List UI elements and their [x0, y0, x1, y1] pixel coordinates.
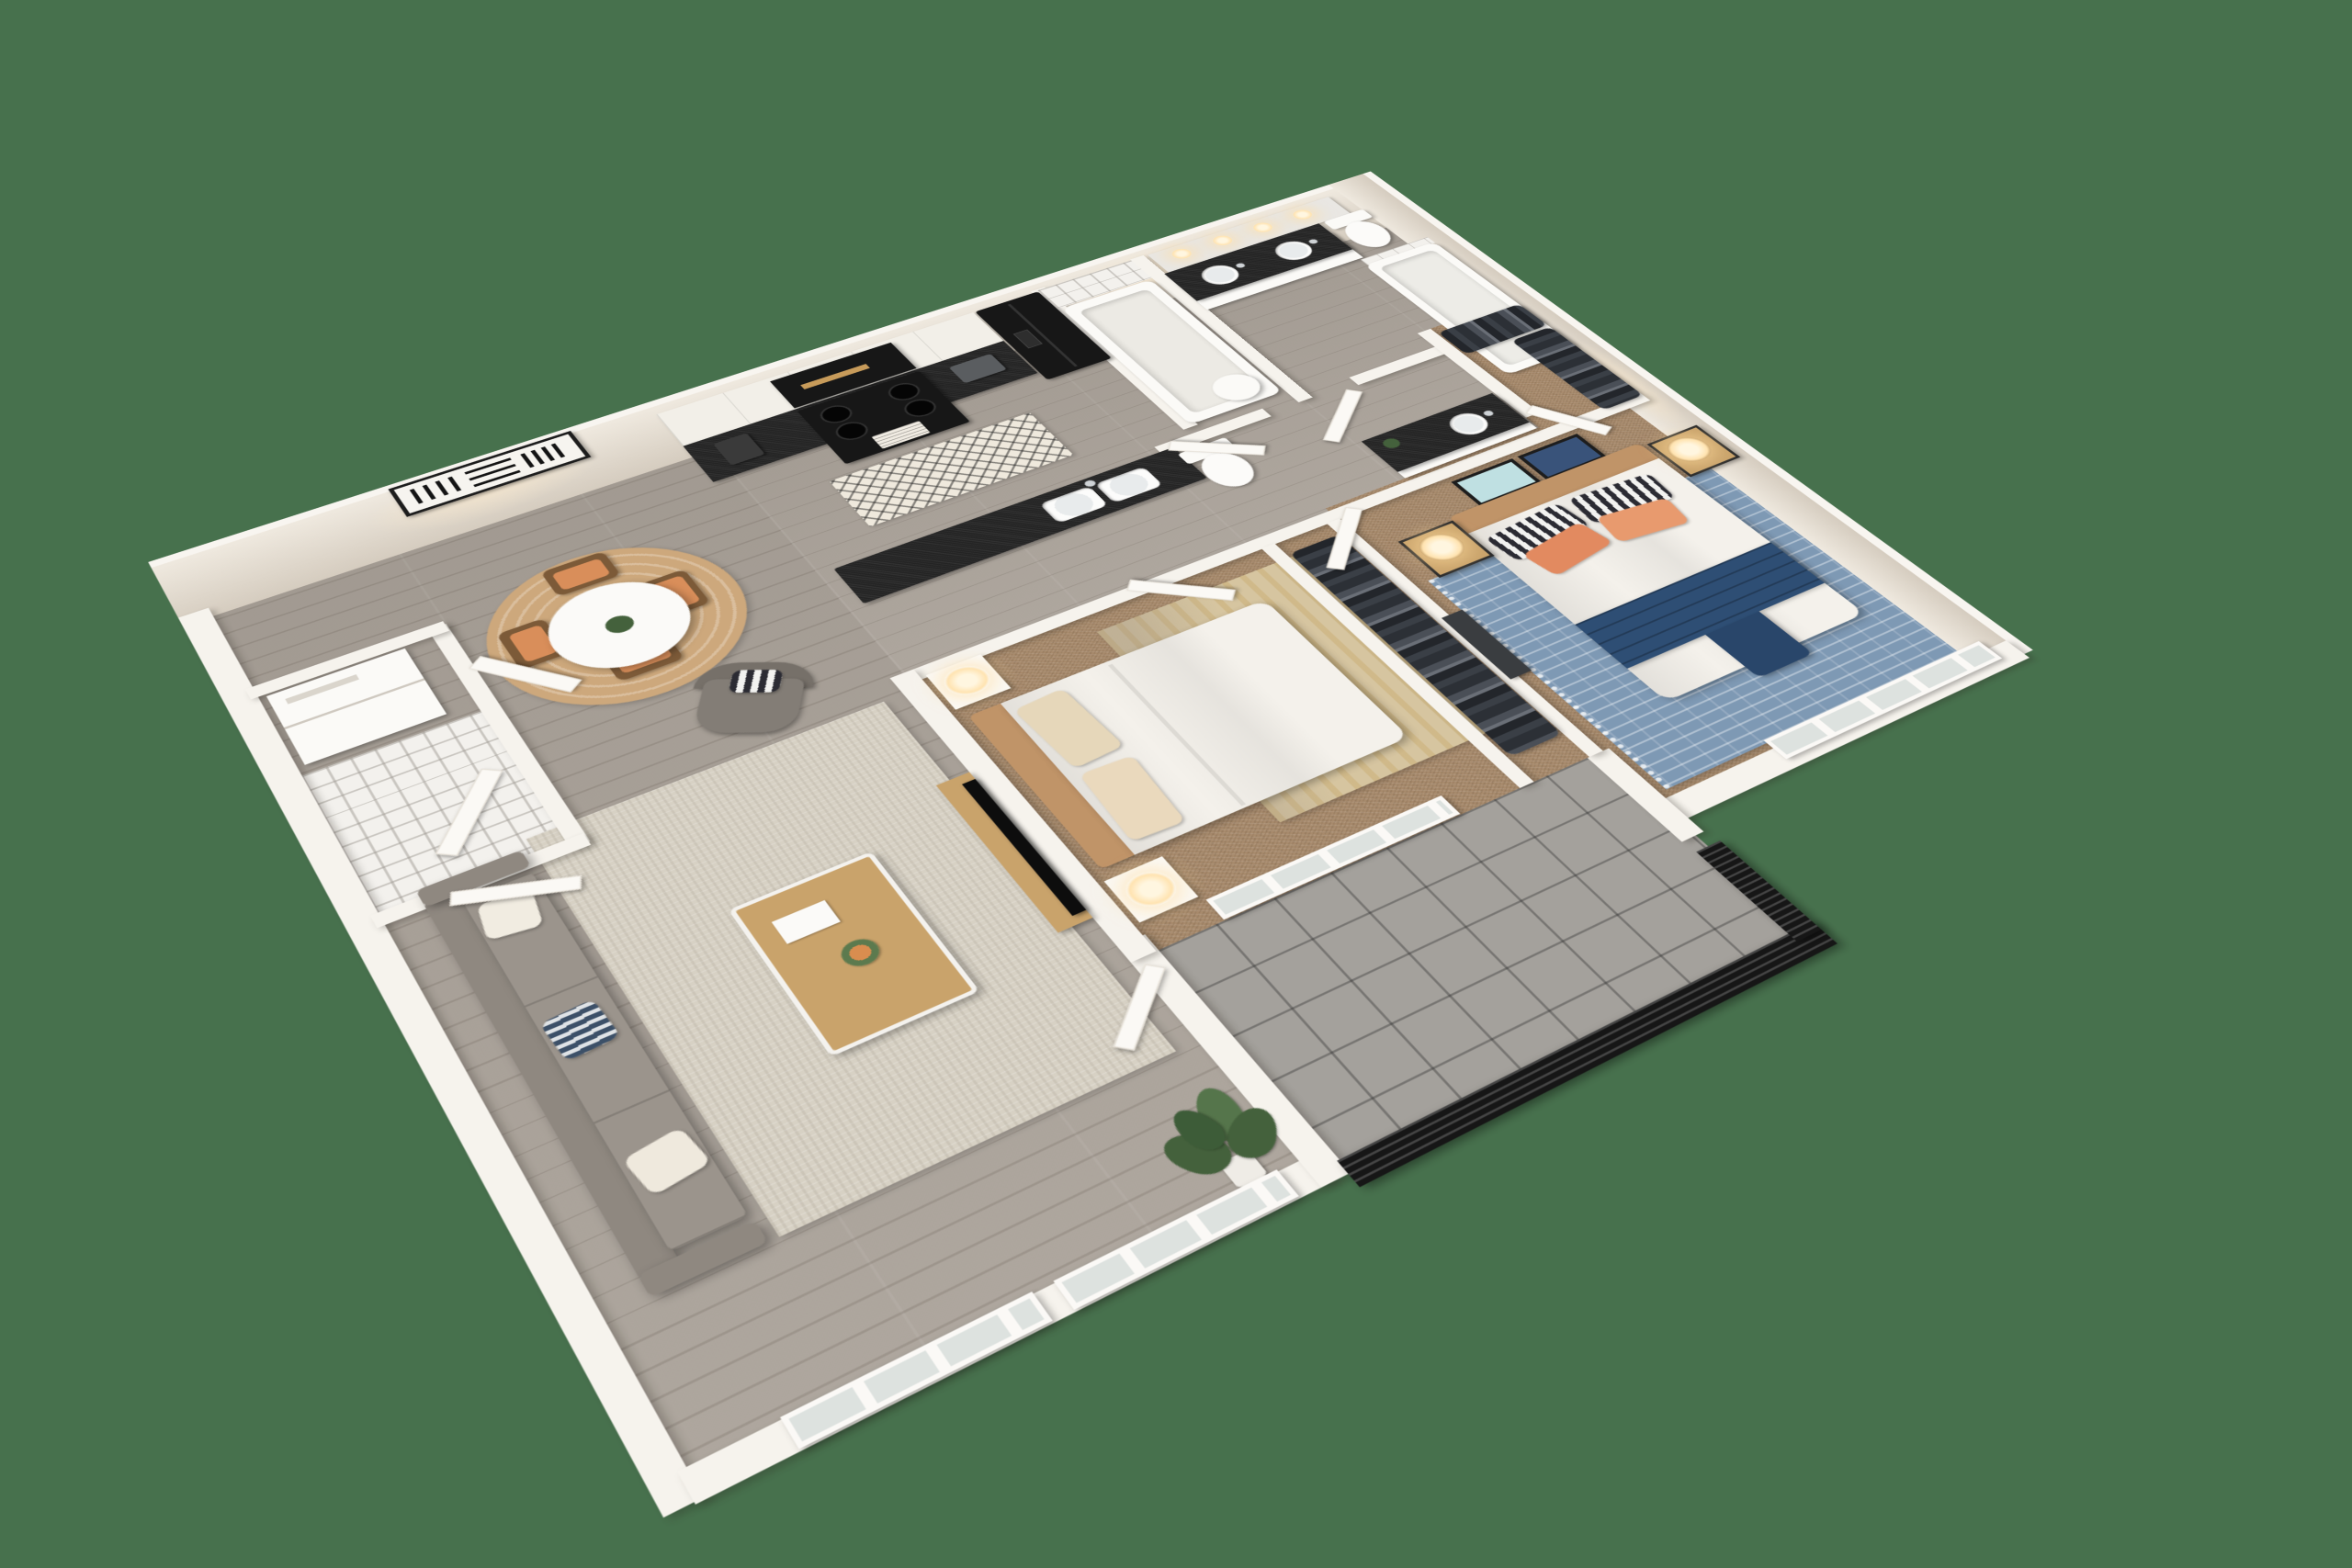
- dining-centerpiece: [601, 612, 638, 636]
- mirror-light-1: [1167, 246, 1196, 261]
- island-sink-left: [1039, 486, 1108, 524]
- microwave-slot: [800, 364, 870, 389]
- washer-gap: [284, 678, 425, 729]
- mirror-light-2: [1208, 232, 1237, 247]
- art-glyph-1: [410, 476, 462, 503]
- accent-chair-pillow: [729, 669, 784, 692]
- mirror-light-3: [1249, 220, 1277, 234]
- island-faucet: [1082, 479, 1097, 487]
- art-glyph-3: [520, 442, 567, 467]
- floor-plan: [148, 174, 2253, 1568]
- coffee-table-flowers: [835, 934, 886, 971]
- render-scene: [0, 0, 2352, 1568]
- island-sink-right: [1094, 466, 1163, 502]
- primary-faucet-1: [1235, 262, 1247, 268]
- accent-chair: [681, 661, 818, 739]
- primary-faucet-2: [1307, 238, 1319, 244]
- mirror-light-4: [1288, 208, 1317, 222]
- coffee-table-book: [772, 899, 841, 943]
